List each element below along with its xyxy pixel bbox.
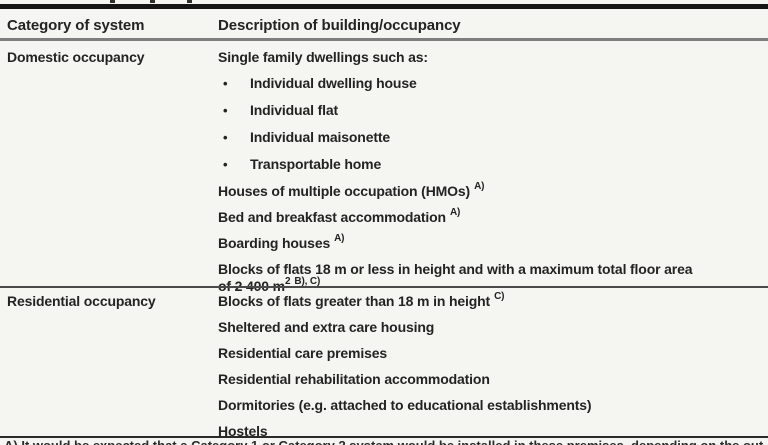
table-row: Bed and breakfast accommodationA) [218,204,762,230]
table-row: Houses of multiple occupation (HMOs)A) [218,178,762,204]
scanned-document-table: Category of system Description of buildi… [0,0,768,445]
row-line: Houses of multiple occupation (HMOs)A) [218,178,762,204]
row-text: Individual dwelling house [250,75,417,91]
bullet-icon: • [218,125,250,151]
table-row: •Transportable home [218,151,762,178]
row-line: Bed and breakfast accommodationA) [218,204,762,230]
table-header-row: Category of system Description of buildi… [0,13,768,39]
row-line: •Transportable home [218,151,762,178]
row-text: Blocks of flats 18 m or less in height a… [218,261,692,277]
row-text: Transportable home [250,156,381,172]
footnote-reference: C) [494,291,504,302]
table-row: Dormitories (e.g. attached to educationa… [218,392,762,418]
row-line: Sheltered and extra care housing [218,314,762,340]
header-divider-rule [0,38,768,41]
footnote-cropped: A) It would be expected that a Category … [4,438,764,445]
table-row: •Individual maisonette [218,124,762,151]
row-line: •Individual dwelling house [218,70,762,97]
row-line: Single family dwellings such as: [218,44,762,70]
table-row: Residential rehabilitation accommodation [218,366,762,392]
row-text: Residential rehabilitation accommodation [218,371,490,387]
row-line: •Individual flat [218,97,762,124]
footnote-reference: A) [450,207,460,218]
row-text: Individual flat [250,102,338,118]
footnote-reference: A) [334,233,344,244]
description-cell: Single family dwellings such as:•Individ… [218,44,762,298]
category-cell: Domestic occupancy [7,44,144,70]
row-line: Dormitories (e.g. attached to educationa… [218,392,762,418]
row-text: Bed and breakfast accommodation [218,209,446,225]
bullet-icon: • [218,152,250,178]
category-cell: Residential occupancy [7,288,156,314]
table-top-rule [0,4,768,9]
table-section-domestic: Domestic occupancySingle family dwelling… [0,44,768,298]
description-cell: Blocks of flats greater than 18 m in hei… [218,288,762,444]
table-row: Boarding housesA) [218,230,762,256]
footnote-reference: A) [474,181,484,192]
row-text: Houses of multiple occupation (HMOs) [218,183,470,199]
row-text: Sheltered and extra care housing [218,319,434,335]
column-header-description: Description of building/occupancy [218,17,461,34]
bullet-icon: • [218,98,250,124]
row-text: Boarding houses [218,235,330,251]
row-text: Single family dwellings such as: [218,49,428,65]
footnote-fragment-text: A) It would be expected that a Category … [4,438,764,445]
table-row: Blocks of flats greater than 18 m in hei… [218,288,762,314]
row-line: Residential rehabilitation accommodation [218,366,762,392]
bullet-icon: • [218,71,250,97]
row-line: •Individual maisonette [218,124,762,151]
row-text: Individual maisonette [250,129,390,145]
row-line: Residential care premises [218,340,762,366]
table-row: Single family dwellings such as: [218,44,762,70]
table-row: •Individual dwelling house [218,70,762,97]
table-row: Sheltered and extra care housing [218,314,762,340]
table-row: Residential care premises [218,340,762,366]
row-line: Blocks of flats greater than 18 m in hei… [218,288,762,314]
row-text: Residential care premises [218,345,387,361]
row-text: Blocks of flats greater than 18 m in hei… [218,293,490,309]
table-section-residential: Residential occupancyBlocks of flats gre… [0,286,768,444]
table-row: •Individual flat [218,97,762,124]
column-header-category: Category of system [7,17,144,34]
row-text: Dormitories (e.g. attached to educationa… [218,397,591,413]
row-line: Boarding housesA) [218,230,762,256]
